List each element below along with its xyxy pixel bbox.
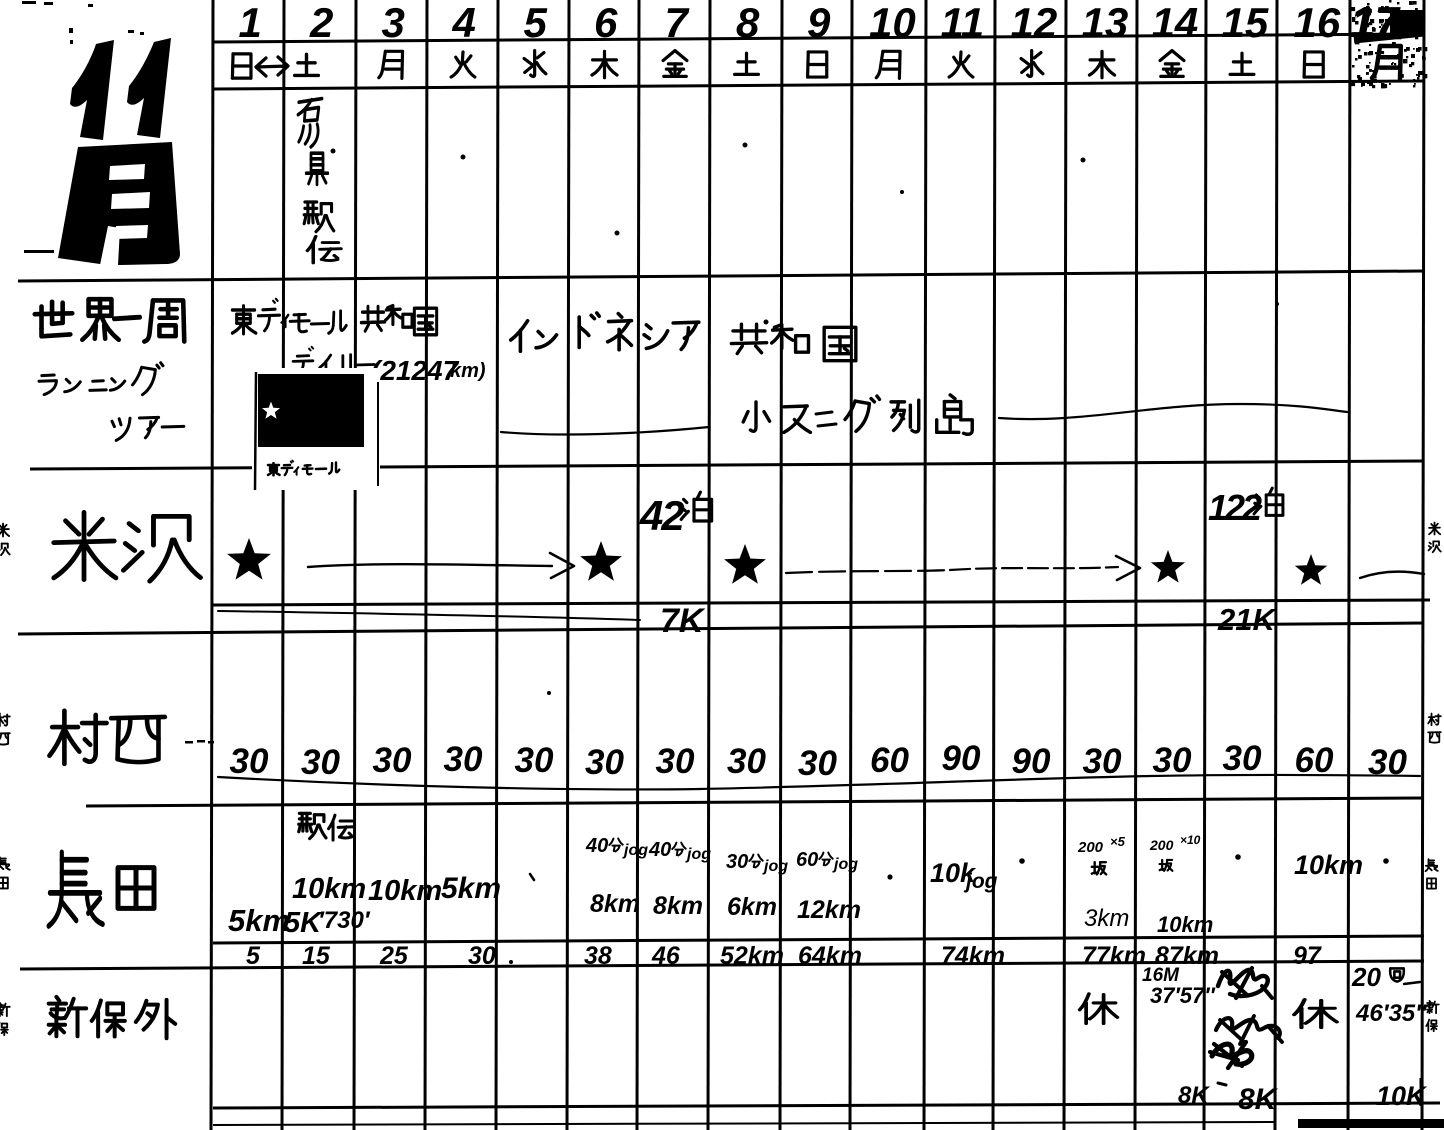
svg-text:jog: jog <box>963 870 998 893</box>
svg-text:(21247: (21247 <box>371 355 460 386</box>
svg-text:77km: 77km <box>1082 942 1146 970</box>
svg-text:74km: 74km <box>941 942 1005 970</box>
svg-text:46: 46 <box>651 942 681 970</box>
svg-text:×5: ×5 <box>1110 834 1126 849</box>
svg-text:5: 5 <box>246 942 261 970</box>
svg-text:30: 30 <box>230 742 269 781</box>
svg-text:10: 10 <box>869 0 916 46</box>
svg-text:30: 30 <box>468 942 496 970</box>
svg-text:122: 122 <box>1208 487 1262 528</box>
svg-text:30: 30 <box>1153 741 1192 780</box>
svg-text:37′57″: 37′57″ <box>1150 983 1216 1008</box>
svg-text:jog: jog <box>762 858 788 875</box>
svg-text:38: 38 <box>584 942 612 970</box>
svg-text:200: 200 <box>1149 837 1174 853</box>
svg-text:30: 30 <box>656 742 695 781</box>
svg-text:2: 2 <box>309 0 333 46</box>
svg-text:km): km) <box>450 360 486 382</box>
svg-text:97: 97 <box>1293 942 1322 970</box>
svg-text:8K: 8K <box>1238 1083 1279 1116</box>
svg-text:15: 15 <box>1222 0 1269 46</box>
svg-text:30: 30 <box>727 742 766 781</box>
svg-text:10km: 10km <box>1294 850 1363 880</box>
svg-text:90: 90 <box>1012 742 1051 781</box>
svg-text:7K: 7K <box>660 602 706 640</box>
svg-text:5: 5 <box>524 0 548 46</box>
svg-text:25: 25 <box>379 942 409 970</box>
svg-text:10km: 10km <box>292 873 366 905</box>
svg-text:10km: 10km <box>368 875 442 907</box>
svg-text:16: 16 <box>1294 0 1341 46</box>
svg-text:30: 30 <box>585 743 624 782</box>
svg-text:×10: ×10 <box>1180 833 1201 847</box>
svg-text:5km: 5km <box>228 903 290 938</box>
svg-text:3: 3 <box>382 0 405 46</box>
svg-text:42: 42 <box>639 492 684 539</box>
svg-text:30: 30 <box>1083 742 1122 781</box>
svg-text:14: 14 <box>1152 0 1199 46</box>
svg-text:5km: 5km <box>441 872 501 905</box>
svg-text:90: 90 <box>942 739 981 778</box>
svg-text:40: 40 <box>648 839 671 861</box>
svg-text:12km: 12km <box>797 896 861 924</box>
svg-text:12: 12 <box>1011 0 1058 46</box>
svg-text:15: 15 <box>302 942 331 970</box>
svg-text:9: 9 <box>807 0 831 46</box>
svg-text:13: 13 <box>1082 0 1129 46</box>
svg-text:′730′: ′730′ <box>318 907 371 934</box>
svg-text:30: 30 <box>798 744 837 783</box>
svg-text:30: 30 <box>301 743 340 782</box>
svg-text:jog: jog <box>622 842 648 859</box>
svg-text:3km: 3km <box>1084 905 1129 932</box>
svg-text:jog: jog <box>832 856 858 873</box>
svg-text:1: 1 <box>239 0 262 46</box>
svg-text:11: 11 <box>941 0 985 46</box>
svg-text:64km: 64km <box>798 942 862 970</box>
svg-text:52km: 52km <box>720 942 784 970</box>
svg-text:8: 8 <box>736 0 760 46</box>
svg-text:4: 4 <box>452 0 476 46</box>
svg-text:46′35″: 46′35″ <box>1355 1000 1428 1027</box>
svg-text:10km: 10km <box>1157 912 1213 937</box>
svg-text:30: 30 <box>444 740 483 779</box>
svg-text:7: 7 <box>665 0 690 46</box>
svg-text:21K: 21K <box>1217 602 1277 637</box>
svg-text:60: 60 <box>796 849 818 871</box>
svg-text:20: 20 <box>1351 962 1381 992</box>
svg-text:8km: 8km <box>653 892 703 920</box>
svg-text:8km: 8km <box>590 890 640 918</box>
svg-text:30: 30 <box>1223 739 1262 778</box>
svg-text:30: 30 <box>373 741 412 780</box>
svg-text:jog: jog <box>685 846 711 863</box>
svg-text:30: 30 <box>726 851 748 873</box>
svg-text:40: 40 <box>585 835 608 857</box>
svg-text:8K: 8K <box>1178 1082 1210 1109</box>
svg-text:60: 60 <box>870 741 909 780</box>
svg-text:30: 30 <box>515 741 554 780</box>
svg-text:200: 200 <box>1077 839 1104 856</box>
svg-text:6km: 6km <box>727 893 777 921</box>
svg-text:6: 6 <box>594 0 618 46</box>
